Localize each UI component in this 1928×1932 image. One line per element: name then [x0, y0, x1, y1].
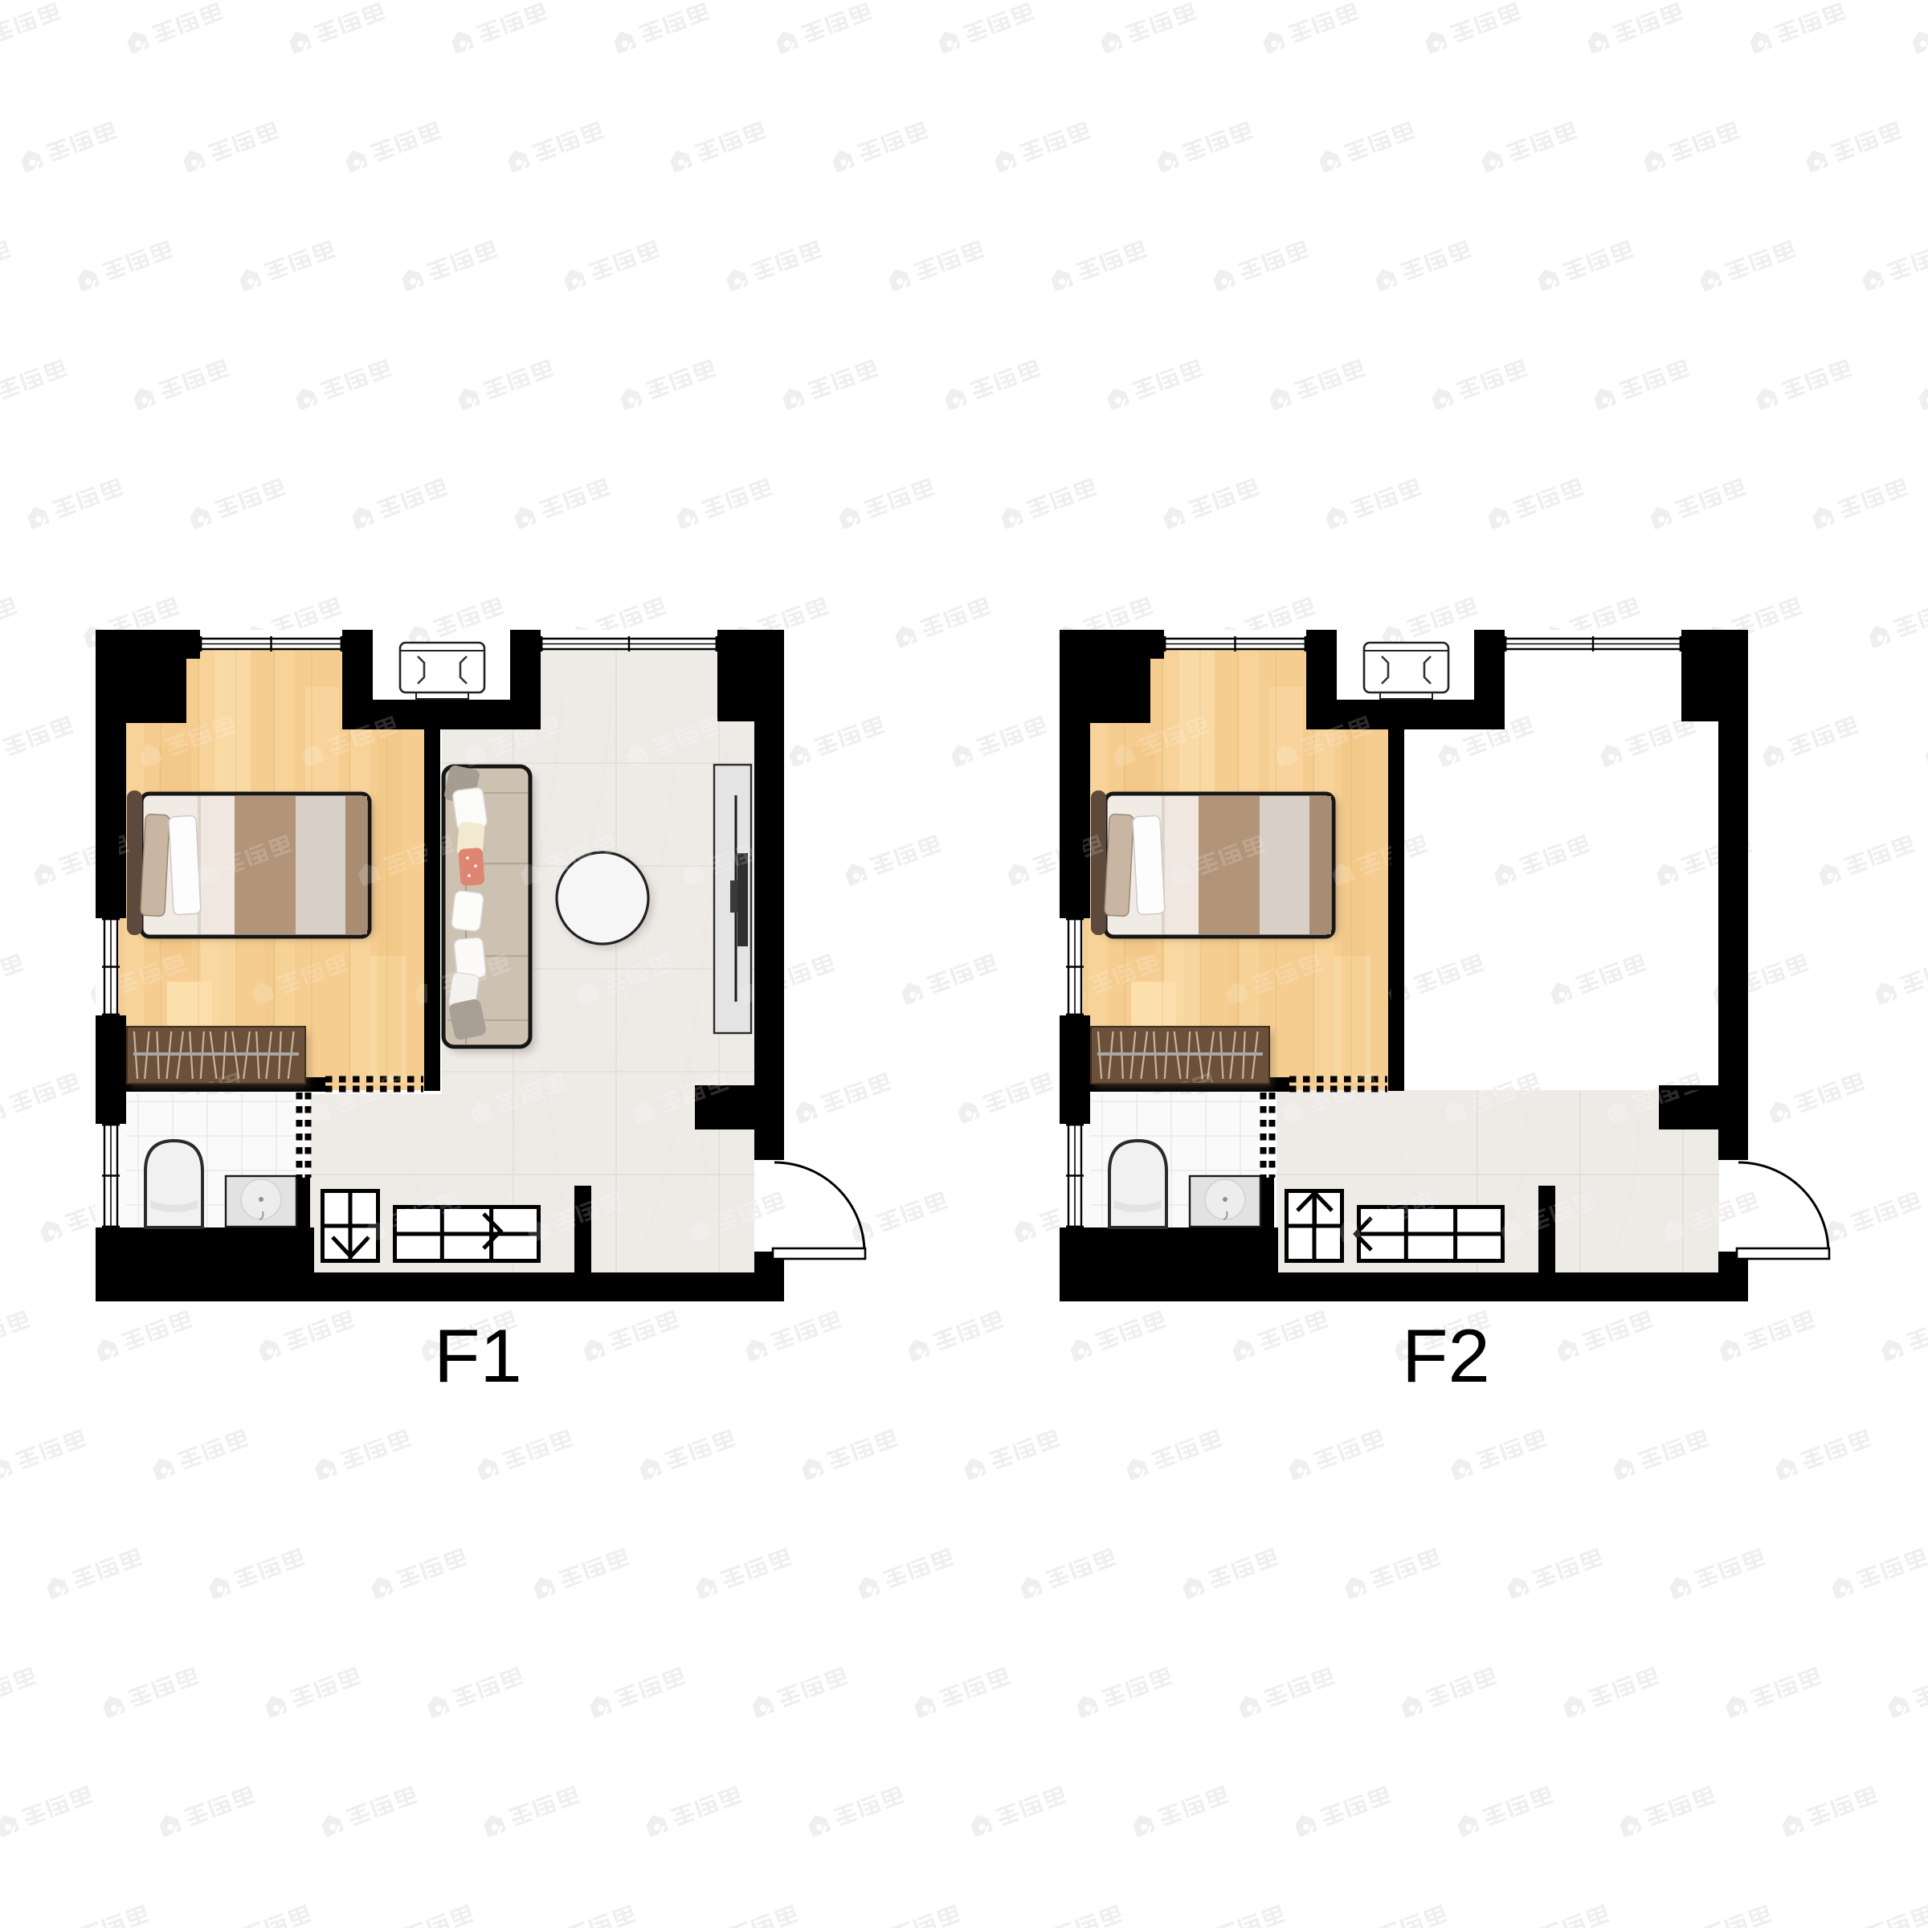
svg-text:F1: F1 — [434, 1313, 522, 1398]
svg-text:F2: F2 — [1402, 1313, 1490, 1398]
